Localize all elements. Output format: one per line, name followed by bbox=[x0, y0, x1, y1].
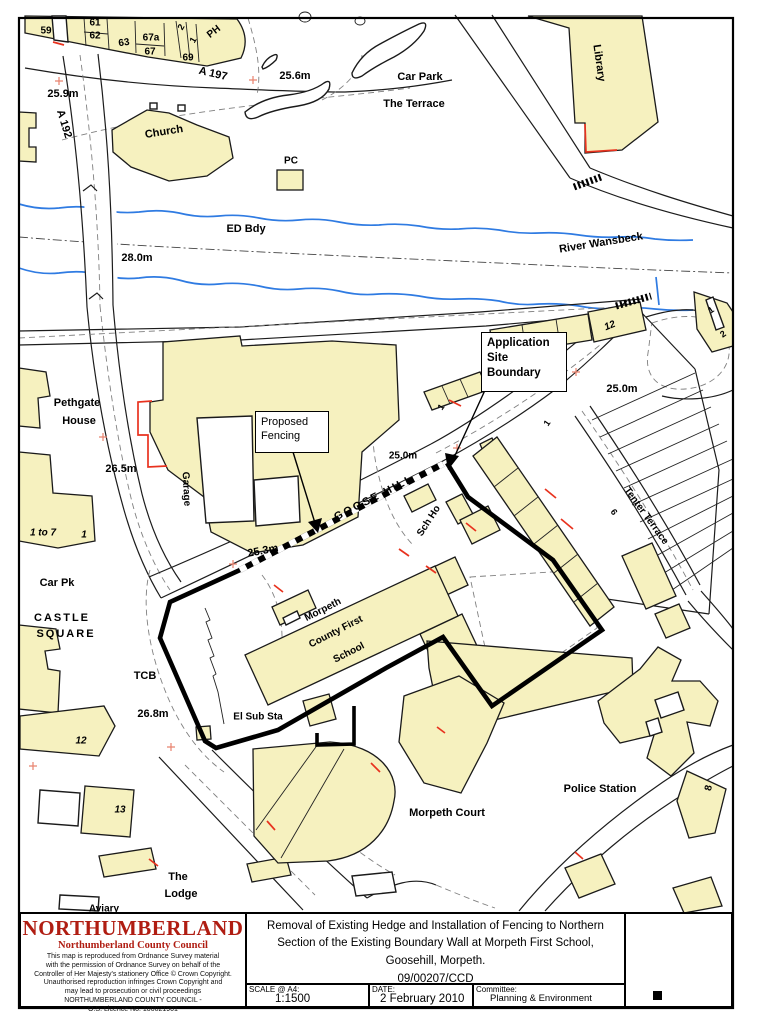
copyright-line: This map is reproduced from Ordnance Sur… bbox=[21, 953, 245, 962]
building-1-to-7 bbox=[19, 452, 95, 548]
callout-line: Site bbox=[487, 351, 561, 366]
proposed-fencing-callout: Proposed Fencing bbox=[255, 411, 329, 453]
map-canvas bbox=[0, 0, 770, 1024]
building-8 bbox=[677, 771, 726, 838]
application-site-boundary-callout: Application Site Boundary bbox=[481, 332, 567, 392]
copyright-line: NORTHUMBERLAND COUNTY COUNCIL - bbox=[21, 997, 245, 1006]
callout-line: Boundary bbox=[487, 366, 561, 381]
callout-line: Proposed bbox=[261, 415, 323, 429]
church-building bbox=[112, 110, 233, 181]
date-cell: DATE: 2 February 2010 bbox=[368, 985, 472, 1006]
title-line: Goosehill, Morpeth. bbox=[247, 953, 624, 970]
building-12 bbox=[20, 706, 115, 756]
council-logo-box: NORTHUMBERLAND Northumberland County Cou… bbox=[19, 912, 247, 1008]
title-block-details-row: SCALE @ A4: 1:1500 DATE: 2 February 2010… bbox=[247, 983, 624, 1006]
steps-symbols bbox=[574, 177, 651, 306]
title-line: Section of the Existing Boundary Wall at… bbox=[247, 935, 624, 952]
committee-cell: Committee: Planning & Environment bbox=[472, 985, 624, 1006]
callout-line: Application bbox=[487, 336, 561, 351]
copyright-line: O.S. Licence No. 100021901 bbox=[21, 1006, 245, 1015]
river-wansbeck bbox=[19, 204, 733, 310]
date-value: 2 February 2010 bbox=[380, 994, 470, 1005]
copyright-line: Unauthorised reproduction infringes Crow… bbox=[21, 979, 245, 988]
scale-cell: SCALE @ A4: 1:1500 bbox=[247, 985, 368, 1006]
copyright-text: This map is reproduced from Ordnance Sur… bbox=[21, 953, 245, 1014]
title-block: Removal of Existing Hedge and Installati… bbox=[245, 912, 626, 1008]
council-subtitle: Northumberland County Council bbox=[21, 940, 245, 951]
scale-value: 1:1500 bbox=[275, 994, 366, 1005]
copyright-line: with the permission of Ordnance Survey o… bbox=[21, 962, 245, 971]
library-building bbox=[528, 16, 658, 153]
copyright-line: Controller of Her Majesty's stationery O… bbox=[21, 971, 245, 980]
council-logo: NORTHUMBERLAND bbox=[21, 917, 245, 939]
buildings bbox=[19, 12, 733, 913]
callout-line: Fencing bbox=[261, 429, 323, 443]
pc-building bbox=[277, 170, 303, 190]
title-line: Removal of Existing Hedge and Installati… bbox=[247, 918, 624, 935]
tenter-terrace-garden-strips bbox=[592, 373, 733, 590]
committee-value: Planning & Environment bbox=[490, 994, 622, 1004]
copyright-line: may lead to prosecution or civil proceed… bbox=[21, 988, 245, 997]
north-marker-box bbox=[624, 912, 733, 1008]
building-13 bbox=[81, 786, 134, 837]
north-marker-square bbox=[653, 991, 662, 1000]
morpeth-court-building bbox=[399, 676, 504, 793]
drawing-title: Removal of Existing Hedge and Installati… bbox=[247, 914, 624, 989]
ed-boundary-line bbox=[19, 237, 733, 273]
os-planning-map-page: 5961626367a676921PHA 19725.6m25.9mCar Pa… bbox=[0, 0, 770, 1024]
